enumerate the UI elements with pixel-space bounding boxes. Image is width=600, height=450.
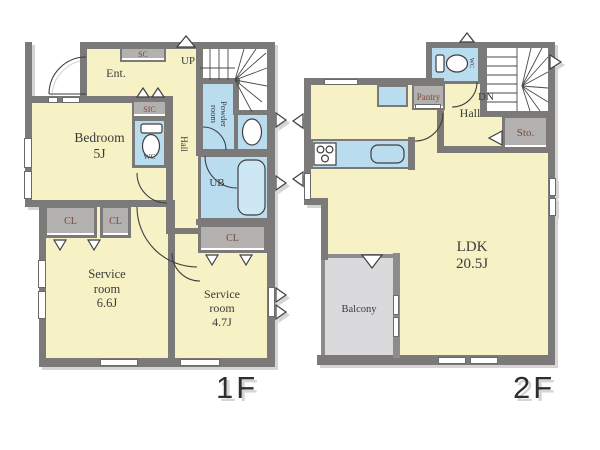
vent-marker <box>293 114 303 128</box>
wc-2f-label: WC <box>465 50 477 76</box>
stair-down-arrow <box>460 33 474 42</box>
vent-marker <box>293 172 303 186</box>
stove-icon <box>314 143 336 165</box>
floor2-plan: Pantry Sto. <box>0 0 600 450</box>
stair-exit-arrow <box>550 55 561 69</box>
floor-plan-image: SC SIC CL CL CL <box>0 0 600 450</box>
balcony-label: Balcony <box>321 302 397 318</box>
ldk-label: LDK 20.5J <box>422 236 522 276</box>
toilet-icon <box>436 55 468 72</box>
balcony-door-marker <box>362 255 382 268</box>
stairs-down-label: DN <box>472 90 500 104</box>
storage-door-marker <box>489 131 502 145</box>
hall-2f-label: Hall <box>448 106 492 122</box>
floor2-linework <box>0 0 600 450</box>
kitchen-door-arc <box>415 113 443 141</box>
kitchen-sink-icon <box>371 145 404 163</box>
floor2-label: 2F <box>513 370 555 406</box>
